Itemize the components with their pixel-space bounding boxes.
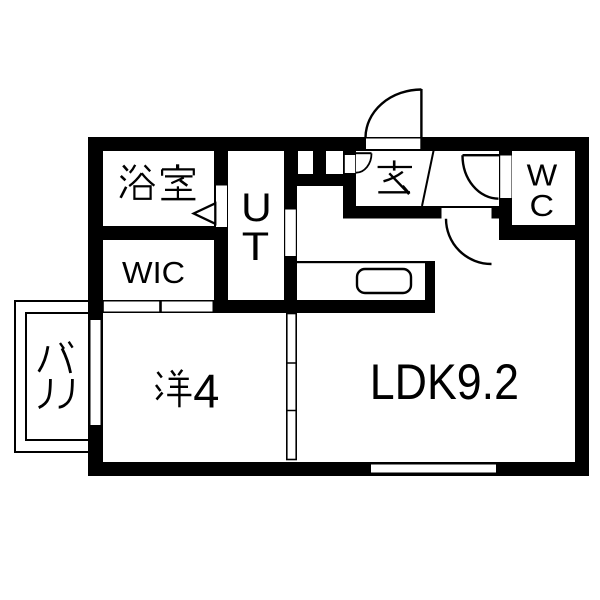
svg-text:4: 4	[193, 364, 219, 417]
svg-text:C: C	[530, 188, 555, 223]
svg-text:T: T	[242, 225, 269, 269]
svg-text:LDK9.2: LDK9.2	[370, 353, 519, 410]
svg-text:WIC: WIC	[122, 255, 185, 290]
svg-text:U: U	[241, 186, 272, 230]
